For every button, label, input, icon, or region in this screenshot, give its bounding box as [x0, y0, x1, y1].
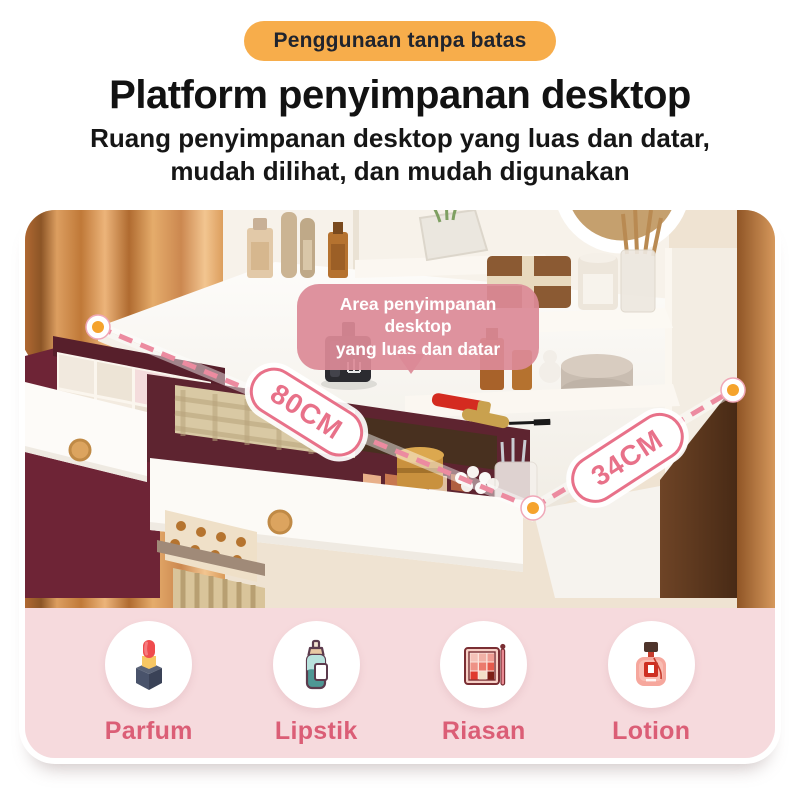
product-infographic-page: Penggunaan tanpa batas Platform penyimpa… — [0, 0, 800, 800]
features-panel: Parfum Lipstik — [25, 608, 775, 758]
product-card: Area penyimpanan desktop yang luas dan d… — [25, 210, 775, 758]
feature-label: Lipstik — [275, 717, 358, 746]
feature-riasan: Riasan — [414, 621, 554, 746]
feature-label: Riasan — [442, 717, 526, 746]
vanity-photo-illustration — [25, 210, 775, 608]
drawer-knob — [269, 511, 291, 533]
candle — [578, 253, 618, 310]
serum-bottle-icon — [288, 637, 344, 693]
lipstick-icon — [121, 637, 177, 693]
subtitle-line-2: mudah dilihat, dan mudah digunakan — [170, 156, 629, 186]
perfume-bottle-icon — [623, 637, 679, 693]
page-subtitle: Ruang penyimpanan desktop yang luas dan … — [0, 122, 800, 188]
product-photo: Area penyimpanan desktop yang luas dan d… — [25, 210, 775, 608]
page-title: Platform penyimpanan desktop — [0, 74, 800, 116]
feature-lotion: Lotion — [581, 621, 721, 746]
feature-parfum: Parfum — [79, 621, 219, 746]
feature-label: Lotion — [612, 717, 690, 746]
subtitle-line-1: Ruang penyimpanan desktop yang luas dan … — [90, 123, 710, 153]
makeup-palette-icon — [456, 637, 512, 693]
callout-line-2: yang luas dan datar — [307, 338, 529, 360]
usage-badge: Penggunaan tanpa batas — [244, 21, 557, 61]
vase — [420, 210, 487, 260]
header: Penggunaan tanpa batas Platform penyimpa… — [0, 0, 800, 188]
callout-line-1: Area penyimpanan desktop — [307, 293, 529, 338]
desktop-area-callout: Area penyimpanan desktop yang luas dan d… — [297, 284, 539, 370]
feature-label: Parfum — [105, 717, 193, 746]
drawer-knob — [70, 440, 90, 460]
feature-lipstik: Lipstik — [246, 621, 386, 746]
